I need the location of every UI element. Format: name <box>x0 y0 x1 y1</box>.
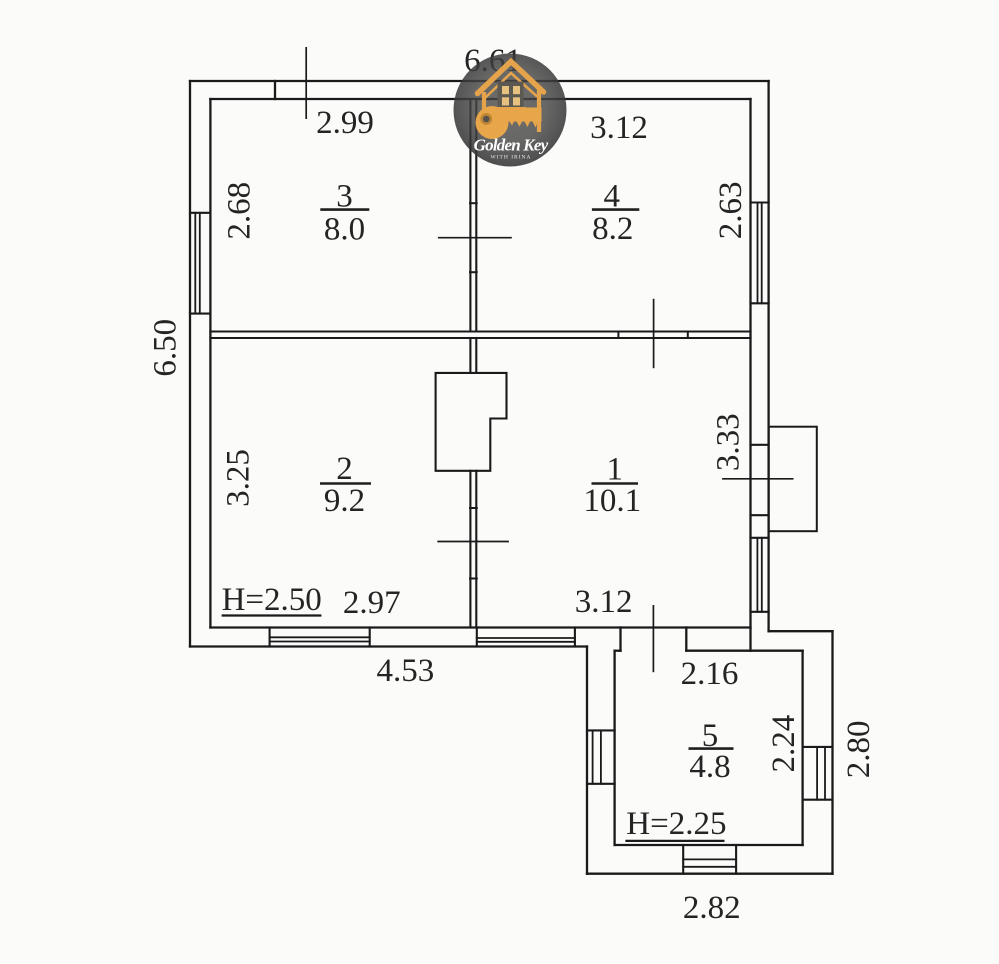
svg-text:3.12: 3.12 <box>590 110 648 146</box>
svg-text:3.33: 3.33 <box>711 413 747 471</box>
svg-text:3.12: 3.12 <box>575 584 633 620</box>
svg-text:8.0: 8.0 <box>324 211 365 247</box>
svg-text:H=2.25: H=2.25 <box>626 806 726 842</box>
svg-text:2: 2 <box>336 451 353 487</box>
svg-text:9.2: 9.2 <box>324 483 365 519</box>
svg-text:2.97: 2.97 <box>343 585 401 621</box>
svg-text:3.25: 3.25 <box>221 449 257 507</box>
svg-text:2.63: 2.63 <box>713 182 749 240</box>
svg-text:2.68: 2.68 <box>221 182 257 240</box>
svg-text:2.82: 2.82 <box>683 890 741 926</box>
svg-text:2.80: 2.80 <box>841 721 877 779</box>
svg-text:2.16: 2.16 <box>681 656 739 692</box>
svg-text:10.1: 10.1 <box>583 483 641 519</box>
svg-text:6.50: 6.50 <box>148 319 184 377</box>
svg-text:H=2.50: H=2.50 <box>222 582 322 618</box>
svg-text:WITH IRINA: WITH IRINA <box>490 155 531 161</box>
svg-text:2.24: 2.24 <box>766 715 802 773</box>
svg-text:2.99: 2.99 <box>316 105 374 141</box>
svg-text:4.8: 4.8 <box>689 749 730 785</box>
svg-text:8.2: 8.2 <box>592 211 633 247</box>
svg-text:Golden Key: Golden Key <box>474 136 549 155</box>
svg-text:4.53: 4.53 <box>377 653 435 689</box>
